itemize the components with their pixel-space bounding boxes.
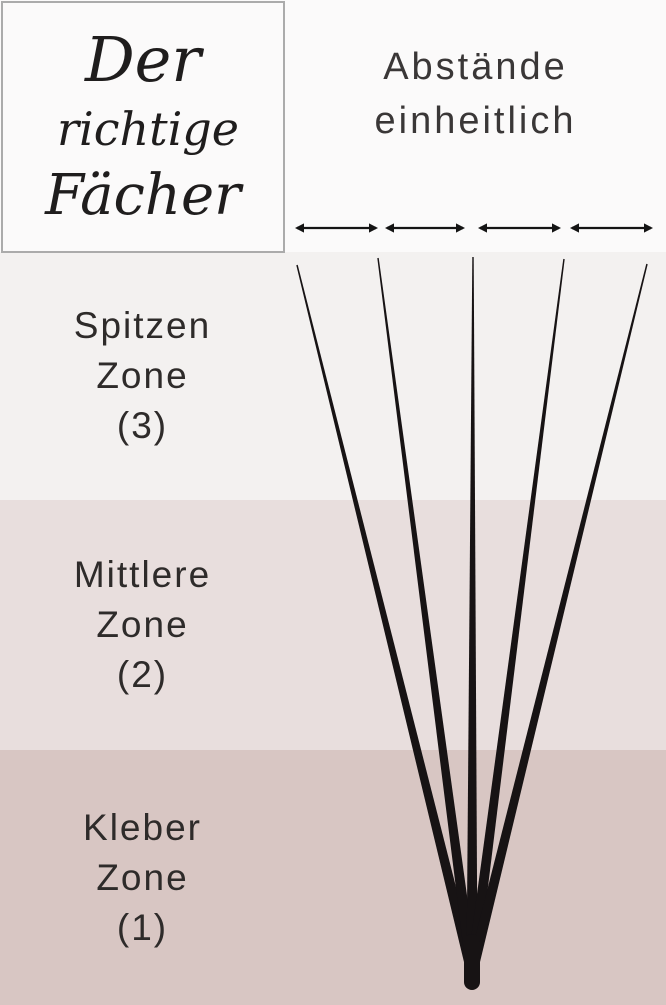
- logo-text-line: Der: [85, 22, 201, 98]
- mittlere-zone-label: Mittlere Zone (2): [0, 500, 285, 750]
- page-title-line: einheitlich: [285, 94, 666, 148]
- zone-label-number: (3): [117, 401, 168, 451]
- kleber-zone-band: Kleber Zone (1): [0, 750, 666, 1005]
- spitzen-zone-band: Spitzen Zone (3): [0, 252, 666, 500]
- logo-text-line: richtige: [57, 98, 239, 160]
- spitzen-zone-label: Spitzen Zone (3): [0, 252, 285, 500]
- logo-box: Der richtige Fächer: [1, 1, 285, 253]
- zone-label-line: Zone: [96, 600, 188, 650]
- zone-label-number: (1): [117, 903, 168, 953]
- mittlere-zone-band: Mittlere Zone (2): [0, 500, 666, 750]
- infographic-canvas: Spitzen Zone (3) Mittlere Zone (2) Klebe…: [0, 0, 666, 1005]
- zone-label-number: (2): [117, 650, 168, 700]
- kleber-zone-label: Kleber Zone (1): [0, 750, 285, 1005]
- zone-label-line: Spitzen: [74, 301, 211, 351]
- zone-label-line: Mittlere: [74, 550, 211, 600]
- logo-text-line: Fächer: [45, 160, 241, 232]
- zone-label-line: Kleber: [83, 803, 202, 853]
- zone-label-line: Zone: [96, 853, 188, 903]
- page-title: Abstände einheitlich: [285, 40, 666, 148]
- zone-label-line: Zone: [96, 351, 188, 401]
- page-title-line: Abstände: [285, 40, 666, 94]
